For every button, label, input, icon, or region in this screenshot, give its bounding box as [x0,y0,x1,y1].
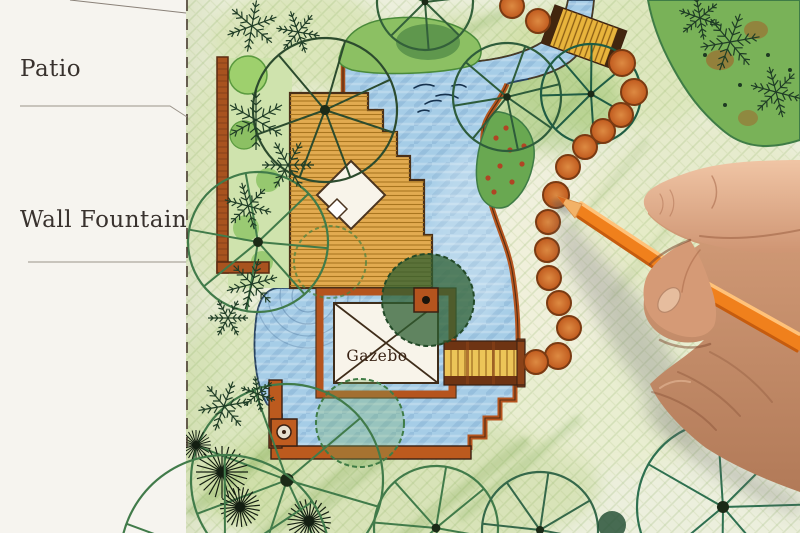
stepping-stone [537,266,561,290]
patio-label: Patio [20,58,81,81]
stepping-stone [573,135,597,159]
leafy-tree-pond [316,379,404,467]
stepping-stone [545,343,571,369]
stepping-stone [621,79,647,105]
stepping-stone [547,291,571,315]
planter-pot [271,419,297,446]
photo-of-landscape-plan: Gazebo [0,0,800,533]
stepping-stone [526,9,550,33]
gazebo-label: Gazebo [346,347,407,365]
stepping-stone [609,50,635,76]
stepping-stone [557,316,581,340]
stepping-stone [556,155,580,179]
stepping-stone [524,350,548,374]
boardwalk [444,339,525,387]
stepping-stone [535,238,559,262]
wall-fountain-label: Wall Fountain [20,209,187,232]
landscape-plan-drawing: Gazebo [0,0,800,533]
leafy-tree-planter [382,254,474,346]
stepping-stone [500,0,524,18]
